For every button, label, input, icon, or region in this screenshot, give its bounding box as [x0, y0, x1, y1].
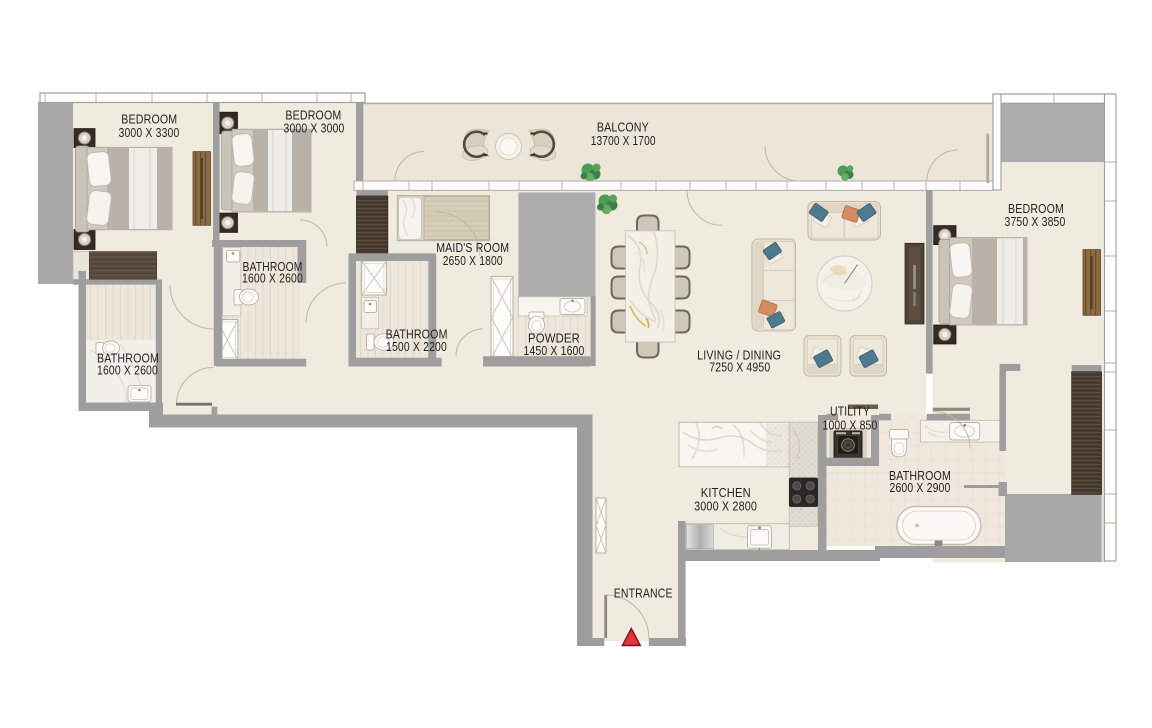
svg-text:1000 X 850: 1000 X 850 [823, 417, 878, 432]
svg-text:1600 X 2600: 1600 X 2600 [242, 271, 303, 286]
svg-text:ENTRANCE: ENTRANCE [614, 586, 673, 601]
svg-text:2650 X 1800: 2650 X 1800 [443, 253, 503, 268]
svg-text:7250 X 4950: 7250 X 4950 [709, 360, 770, 375]
svg-text:1600 X 2600: 1600 X 2600 [97, 363, 158, 378]
svg-text:3000 X 2800: 3000 X 2800 [694, 499, 757, 514]
svg-text:1500 X 2200: 1500 X 2200 [386, 339, 447, 354]
svg-text:1450 X 1600: 1450 X 1600 [524, 343, 585, 358]
svg-text:3000 X 3300: 3000 X 3300 [119, 125, 180, 140]
svg-text:3750 X 3850: 3750 X 3850 [1005, 214, 1066, 229]
svg-text:13700 X 1700: 13700 X 1700 [591, 133, 656, 148]
svg-text:2600 X 2900: 2600 X 2900 [890, 480, 951, 495]
svg-text:3000 X 3000: 3000 X 3000 [284, 121, 345, 136]
